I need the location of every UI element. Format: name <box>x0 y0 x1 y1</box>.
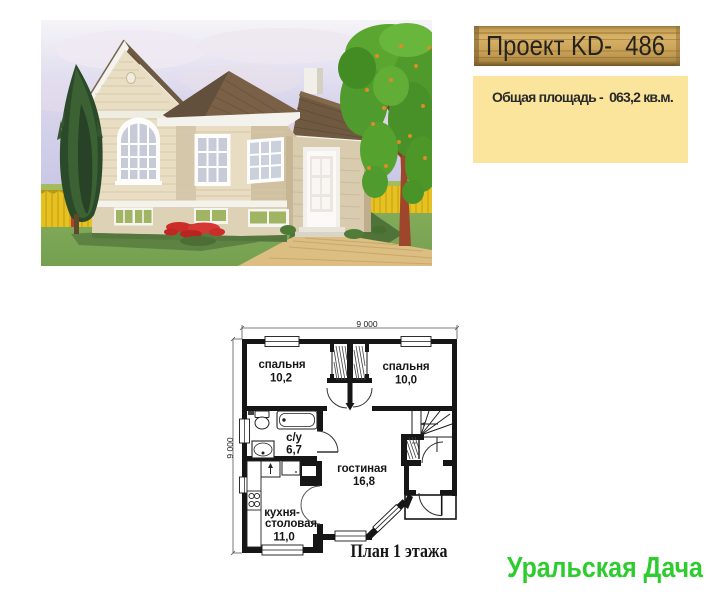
svg-text:спальня: спальня <box>258 359 305 371</box>
svg-text:гостиная: гостиная <box>337 463 387 475</box>
svg-text:столовая: столовая <box>265 518 317 530</box>
svg-text:План 1 этажа: План 1 этажа <box>351 542 448 562</box>
svg-text:спальня: спальня <box>382 361 429 373</box>
svg-text:9 000: 9 000 <box>356 319 378 329</box>
svg-text:10,2: 10,2 <box>270 373 292 385</box>
svg-text:11,0: 11,0 <box>273 532 294 544</box>
svg-text:9 000: 9 000 <box>225 437 235 459</box>
svg-text:10,0: 10,0 <box>395 375 417 387</box>
svg-text:16,8: 16,8 <box>353 476 376 488</box>
svg-text:6,7: 6,7 <box>286 445 302 457</box>
svg-text:с/у: с/у <box>286 432 302 444</box>
